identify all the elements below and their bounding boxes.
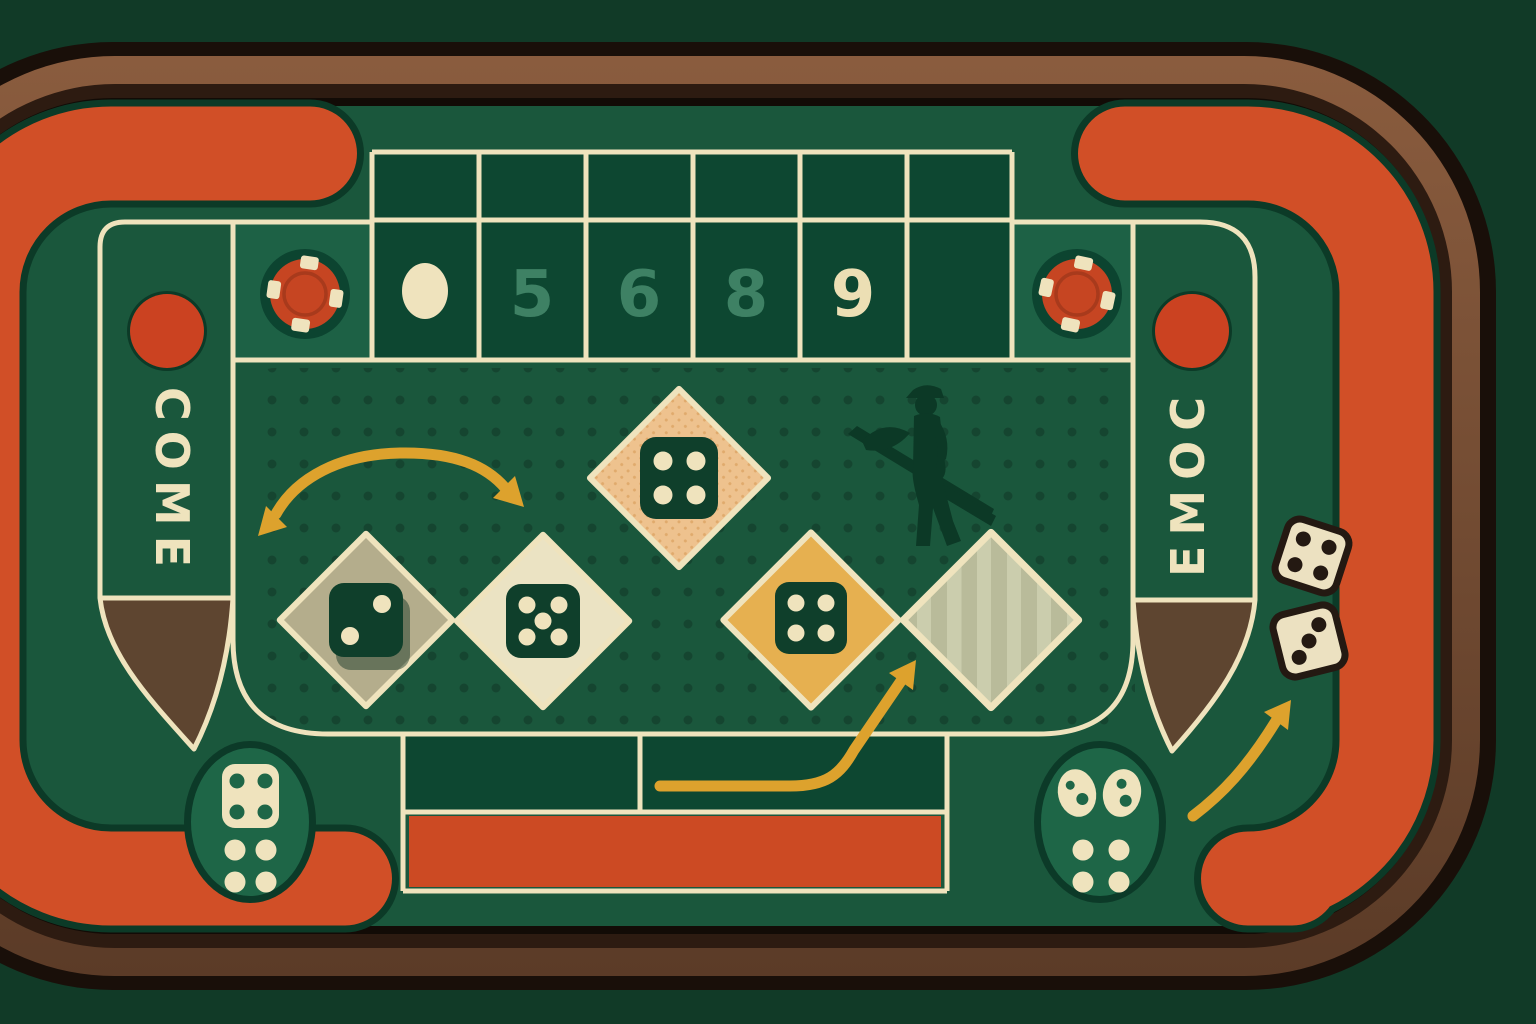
orange-bet-strip <box>409 816 941 887</box>
point-number-8: 8 <box>724 258 769 332</box>
come-label-right: EMOC <box>1161 387 1215 577</box>
chip-body <box>270 259 340 329</box>
die-face-5 <box>506 584 580 658</box>
die-face-4 <box>775 582 847 654</box>
left-come-circle <box>130 294 204 368</box>
point-number-6: 6 <box>617 258 662 332</box>
chip-top-left <box>260 249 350 339</box>
chip-body <box>1042 259 1112 329</box>
die-face-4 <box>640 437 718 519</box>
icon-dice-and-dots-right <box>1034 741 1166 903</box>
dealer-puck <box>402 263 448 319</box>
point-number-9: 9 <box>831 258 876 332</box>
oval-body <box>1041 748 1159 896</box>
die-outline-icon <box>222 764 279 828</box>
proposition-row-fill <box>403 734 947 812</box>
loose-die-3 <box>1270 602 1348 680</box>
come-label-left: COME <box>145 387 199 577</box>
right-come-circle <box>1155 294 1229 368</box>
craps-table-illustration: 5 6 8 9 COME EMOC <box>0 0 1536 1024</box>
die-face-2 <box>329 583 403 657</box>
icon-die-and-dots-left <box>184 741 316 903</box>
table-canvas: 5 6 8 9 COME EMOC <box>0 0 1536 1024</box>
point-number-5: 5 <box>510 258 555 332</box>
chip-top-right <box>1032 249 1122 339</box>
